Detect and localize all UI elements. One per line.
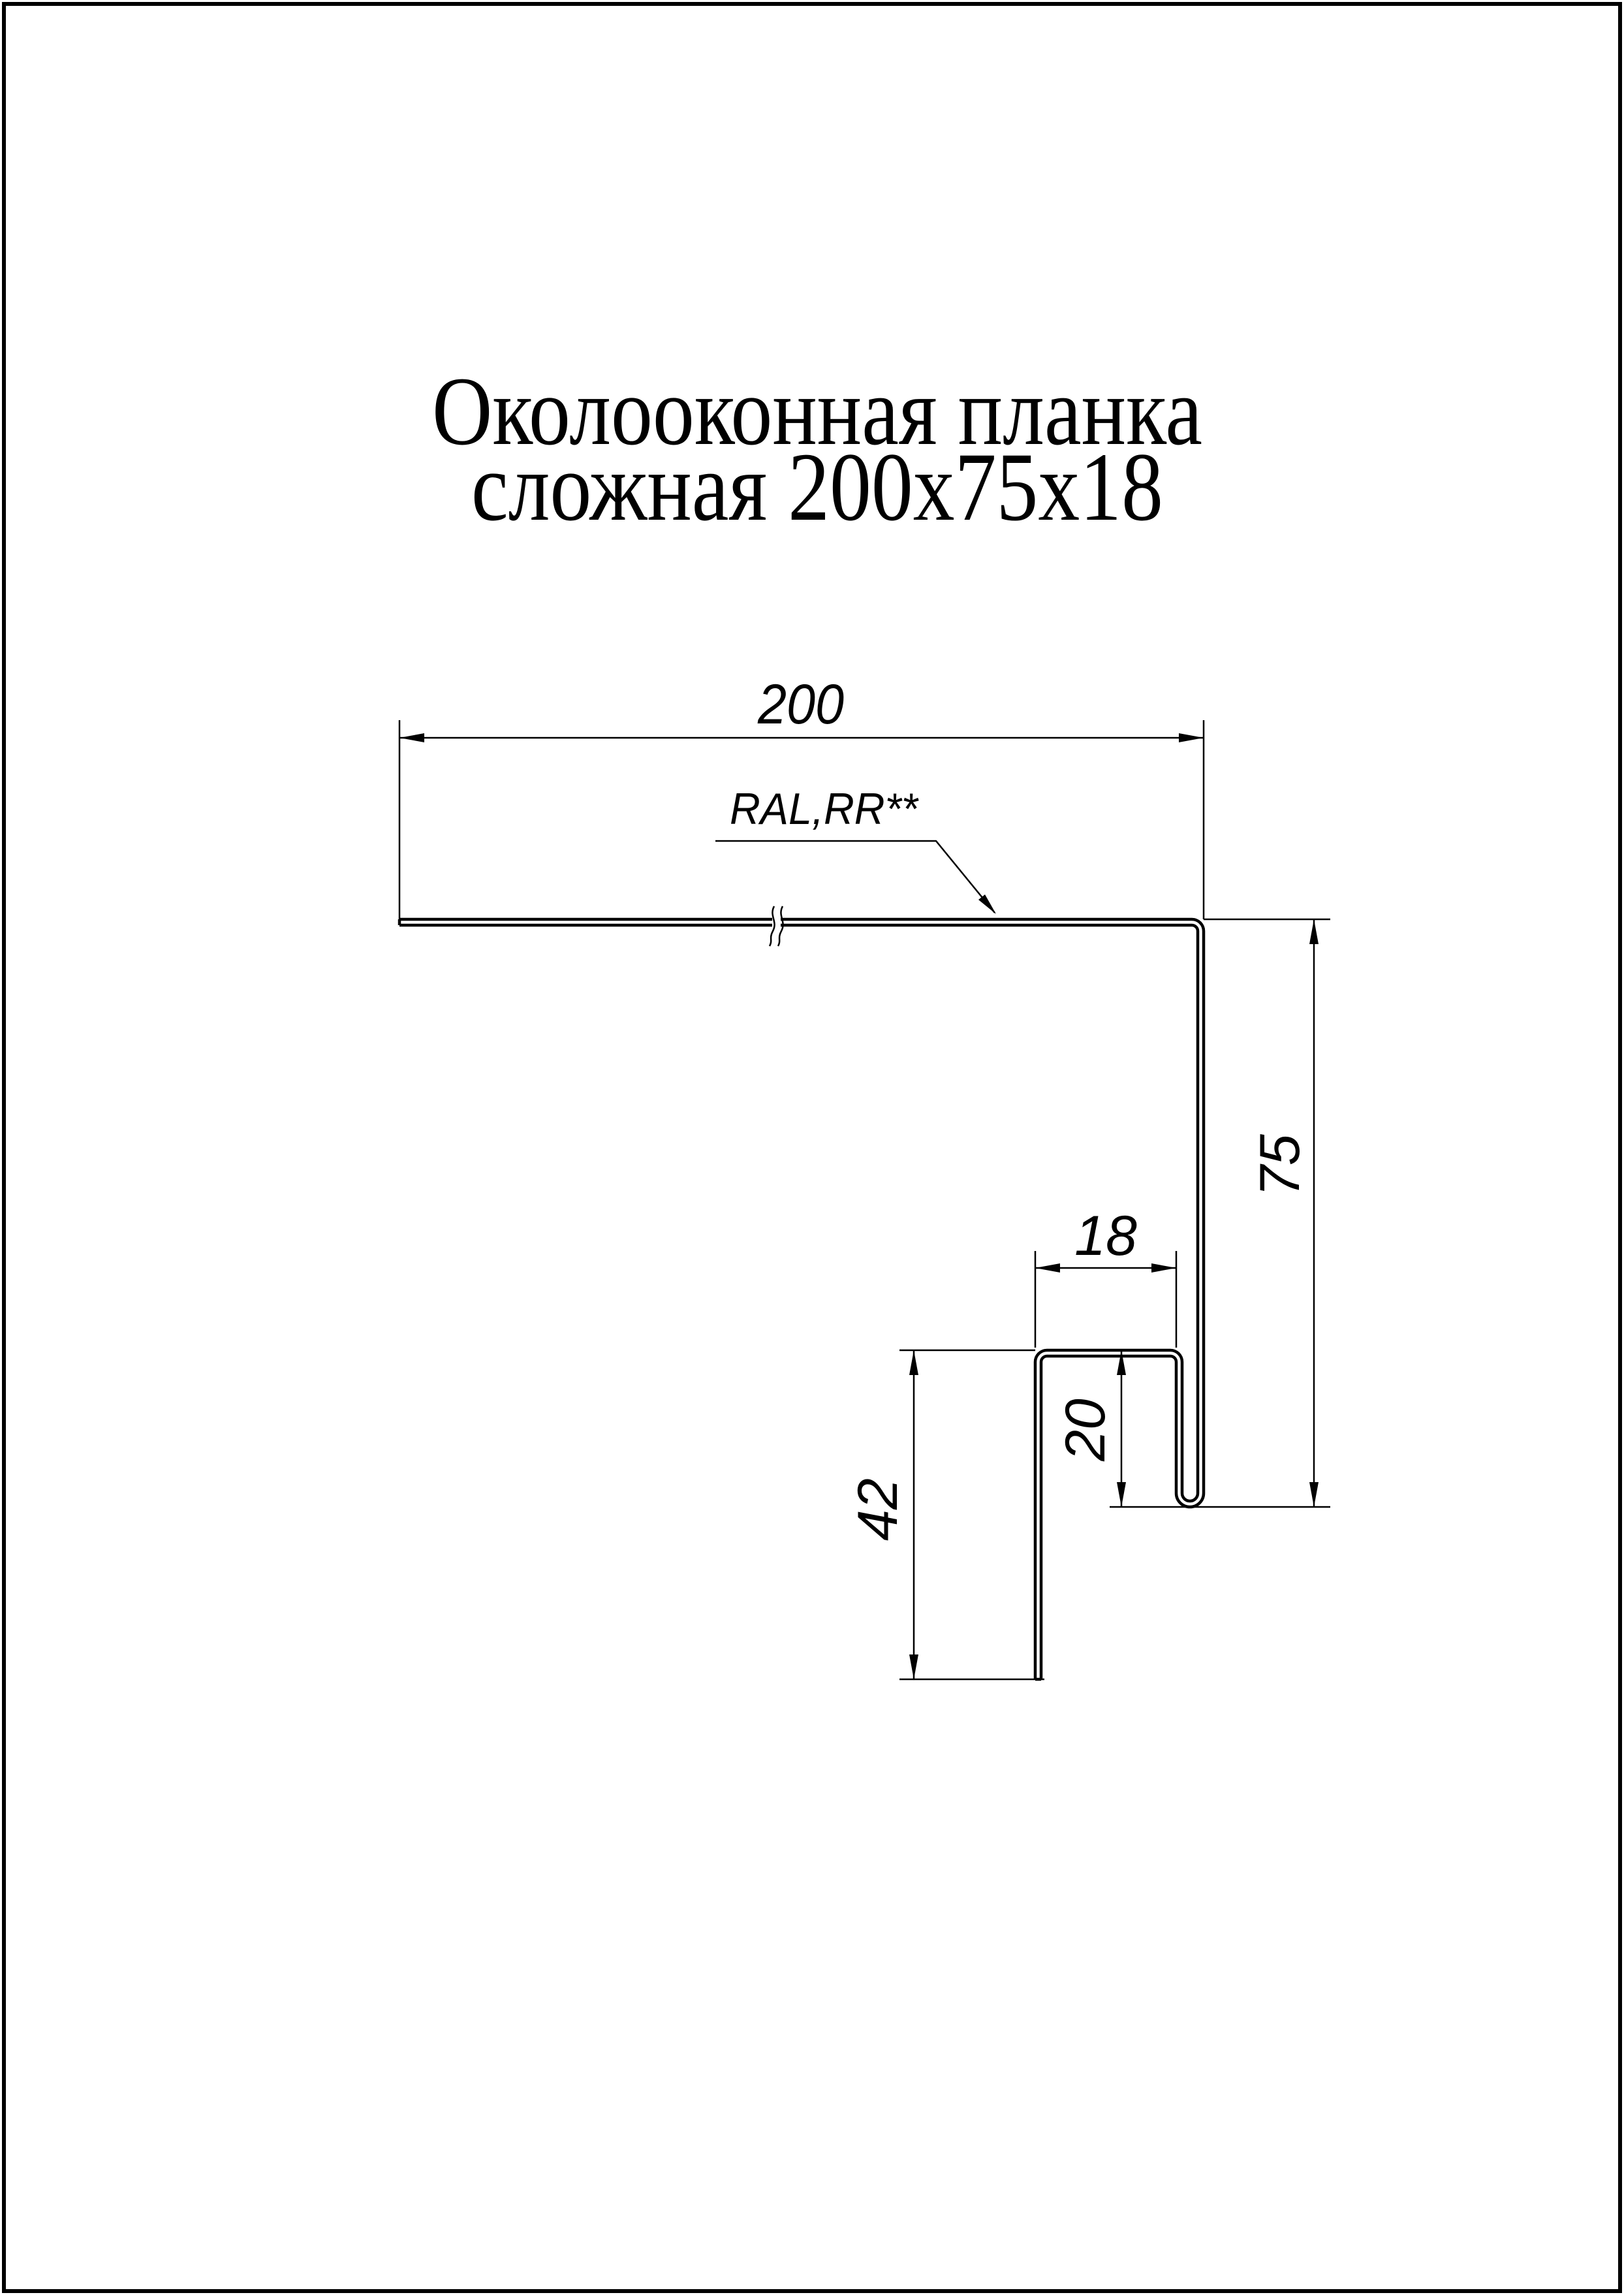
- dimension-label-200: 200: [757, 673, 844, 736]
- dimension-75: 75: [1110, 919, 1330, 1507]
- leader-arrowhead: [978, 894, 996, 914]
- dimension-label-18: 18: [1074, 1205, 1137, 1267]
- dimension-42: 42: [847, 1350, 1044, 1679]
- arrowhead-bottom: [1117, 1482, 1126, 1507]
- arrowhead-right: [1151, 1263, 1176, 1273]
- drawing-sheet: Околооконная планка сложная 200х75х18 20…: [0, 0, 1624, 2295]
- drawing-title: Околооконная планка сложная 200х75х18: [432, 357, 1202, 541]
- material-label: RAL,RR**: [730, 784, 919, 834]
- dimension-label-75: 75: [1249, 1133, 1311, 1197]
- leader-line: [715, 841, 995, 913]
- arrowhead-left: [399, 733, 424, 742]
- arrowhead-bottom: [1309, 1482, 1319, 1507]
- arrowhead-bottom: [909, 1654, 918, 1679]
- profile-inner-face: [399, 925, 1198, 1679]
- arrowhead-top: [1309, 919, 1319, 944]
- dimension-label-42: 42: [847, 1478, 909, 1541]
- profile-outer-face: [399, 919, 1204, 1679]
- technical-drawing: Околооконная планка сложная 200х75х18 20…: [0, 0, 1624, 2295]
- material-leader: RAL,RR**: [715, 784, 996, 914]
- page-border: [4, 4, 1620, 2291]
- dimension-20: 20: [1054, 1350, 1126, 1507]
- page-title-line2: сложная 200х75х18: [471, 433, 1163, 541]
- profile-outline: [399, 919, 1204, 1679]
- dimension-18: 18: [1035, 1205, 1176, 1348]
- arrowhead-top: [1117, 1350, 1126, 1375]
- dimension-label-20: 20: [1054, 1399, 1117, 1462]
- arrowhead-right: [1179, 733, 1204, 742]
- arrowhead-left: [1035, 1263, 1060, 1273]
- arrowhead-top: [909, 1350, 918, 1375]
